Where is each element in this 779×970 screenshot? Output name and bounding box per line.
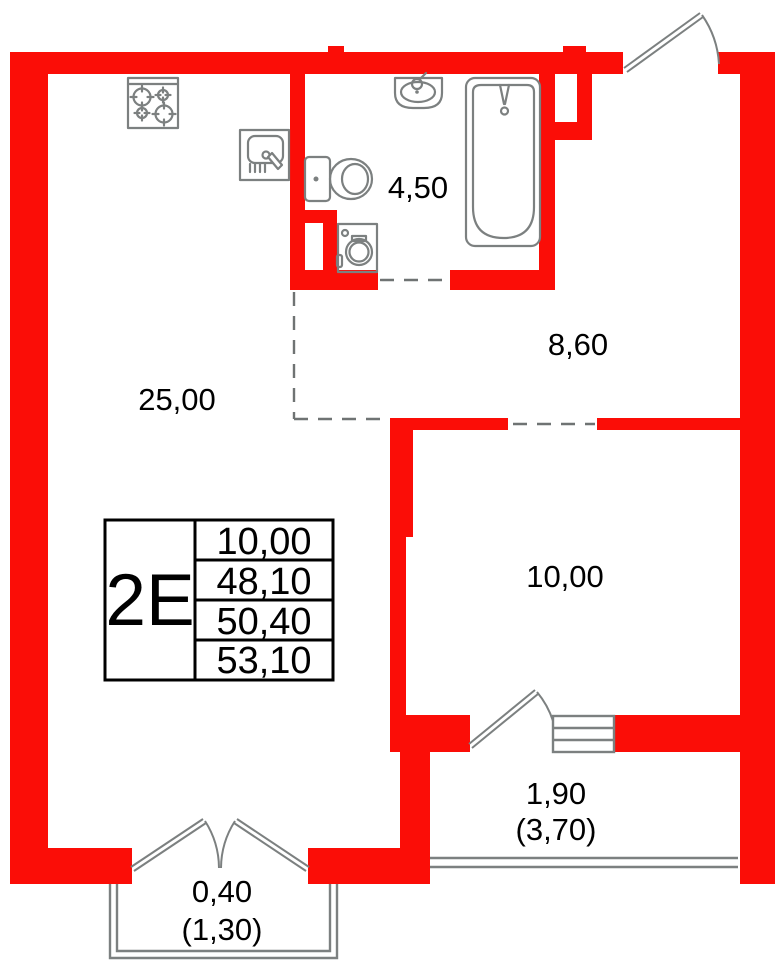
wall-outer-left <box>10 52 48 884</box>
area-label-loggia: 1,90 <box>526 776 586 811</box>
info-table-value-1: 10,00 <box>216 521 311 563</box>
area-label-loggia-coefficient: (3,70) <box>516 812 597 847</box>
wall-outer-right <box>740 52 775 884</box>
wall-top-bump-left <box>328 46 344 54</box>
wall-top-bump-right <box>563 46 586 54</box>
area-label-kitchen-living: 25,00 <box>138 382 216 417</box>
wall-bottom-left <box>10 848 132 884</box>
apartment-type-label: 2E <box>105 560 194 641</box>
area-label-bedroom: 10,00 <box>526 559 604 594</box>
wall-bedroom-top-right <box>597 418 740 430</box>
wall-divider-lower <box>390 537 406 718</box>
wall-bedroom-top-left <box>390 418 508 430</box>
floor-plan: 25,00 4,50 8,60 10,00 1,90 (3,70) 0,40 (… <box>0 0 779 970</box>
wall-divider-upper <box>390 418 413 537</box>
floor-plan-background <box>0 0 779 970</box>
wall-bathroom-shaft-right <box>323 210 337 280</box>
apartment-info-table: 2E 10,00 48,10 50,40 53,10 <box>105 520 333 682</box>
wall-entry-shaft-bottom <box>555 122 592 140</box>
wall-bathroom-left <box>290 74 305 290</box>
wall-loggia-left <box>400 715 430 884</box>
wall-outer-top <box>10 52 623 74</box>
area-label-bathroom: 4,50 <box>388 170 448 205</box>
wall-loggia-top-right <box>613 715 740 752</box>
area-label-balcony-coefficient: (1,30) <box>182 912 263 947</box>
info-table-value-4: 53,10 <box>216 640 311 682</box>
area-label-hallway: 8,60 <box>548 327 608 362</box>
info-table-value-2: 48,10 <box>216 561 311 603</box>
area-label-balcony: 0,40 <box>192 874 252 909</box>
floor-plan-svg: 25,00 4,50 8,60 10,00 1,90 (3,70) 0,40 (… <box>0 0 779 970</box>
wall-bathroom-right <box>539 74 555 290</box>
wall-entry-shaft-right <box>577 74 592 122</box>
info-table-value-3: 50,40 <box>216 601 311 643</box>
